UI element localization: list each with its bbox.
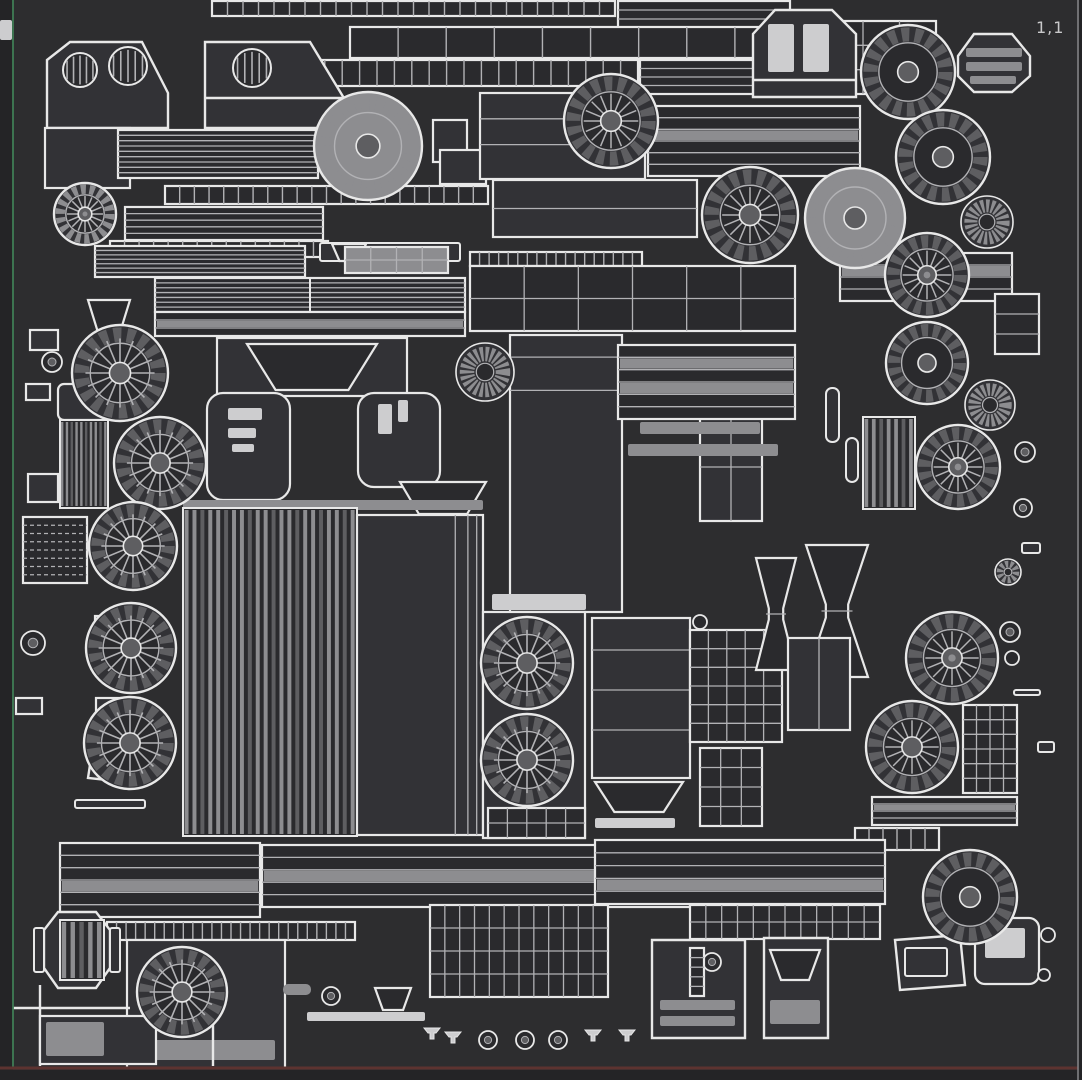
island-cab-front-small[interactable] [958,34,1030,92]
island-circle[interactable] [1038,969,1050,981]
island-bar[interactable] [307,1012,425,1021]
island-bar[interactable] [966,62,1022,71]
island-wheel[interactable] [702,167,798,263]
island-ladder[interactable] [470,252,642,266]
island-circle[interactable] [1000,622,1020,642]
island-bar[interactable] [228,428,256,438]
island-panel[interactable] [28,474,58,502]
island-grid[interactable] [995,294,1039,354]
island-5[interactable] [648,106,860,176]
island-wheel[interactable] [861,25,955,119]
island-donut[interactable] [961,196,1013,248]
island-circle[interactable] [693,615,707,629]
island-bar[interactable] [966,48,1022,57]
island-panel[interactable] [788,638,850,730]
island-tee[interactable] [445,1032,461,1043]
island-circle[interactable] [516,1031,534,1049]
island-gcirc[interactable] [233,49,271,87]
island-6[interactable] [95,246,305,277]
uv-canvas[interactable] [0,0,1082,1080]
island-wheel[interactable] [564,74,658,168]
island-wheel[interactable] [885,233,969,317]
island-5[interactable] [60,843,260,917]
island-wheel[interactable] [86,603,176,693]
island-panel[interactable] [207,393,290,500]
outside-uv-left [0,0,13,1080]
island-bar[interactable] [34,928,44,972]
island-cab-side[interactable] [47,42,168,128]
island-bar[interactable] [137,1040,275,1060]
island-bar[interactable] [970,76,1016,84]
island-donut[interactable] [965,380,1015,430]
island-grid[interactable] [430,905,608,997]
island-bar[interactable] [660,1016,735,1026]
island-circle[interactable] [322,987,340,1005]
island-ladder[interactable] [350,27,783,58]
island-wheel[interactable] [886,322,968,404]
island-wheel[interactable] [866,701,958,793]
island-wheel[interactable] [137,947,227,1037]
island-panel[interactable] [493,180,697,237]
island-bar[interactable] [1022,543,1040,553]
island-wheel[interactable] [314,92,422,200]
island-vstripes[interactable] [183,508,357,836]
island-panel[interactable] [510,335,622,612]
island-circle[interactable] [479,1031,497,1049]
island-bar[interactable] [905,948,947,976]
island-circle[interactable] [42,352,62,372]
island-panel[interactable] [30,330,58,350]
island-donut[interactable] [995,559,1021,585]
island-wheel[interactable] [906,612,998,704]
island-vstripes[interactable] [60,420,108,508]
island-wheel[interactable] [896,110,990,204]
island-bar[interactable] [595,818,675,828]
island-panel[interactable] [40,1016,156,1064]
island-wheel[interactable] [84,697,176,789]
island-vstripes[interactable] [60,920,104,980]
island-ladder[interactable] [212,1,615,16]
island-trap[interactable] [595,782,683,812]
island-wheel[interactable] [72,325,168,421]
island-tee[interactable] [619,1030,635,1041]
island-7[interactable] [23,517,87,583]
island-grid[interactable] [690,905,880,939]
island-trap[interactable] [375,988,411,1010]
island-donut[interactable] [456,343,514,401]
island-bar[interactable] [768,24,794,72]
island-ladder[interactable] [165,186,488,204]
island-circle[interactable] [21,631,45,655]
island-cab-bottom[interactable] [652,940,745,1038]
island-bar[interactable] [803,24,829,72]
island-ladder[interactable] [107,922,355,940]
island-circle[interactable] [1014,499,1032,517]
island-bar[interactable] [660,1000,735,1010]
island-bar[interactable] [283,984,311,995]
island-bar[interactable] [628,444,778,456]
island-wheel[interactable] [481,617,573,709]
island-bar[interactable] [826,388,839,442]
island-wheel[interactable] [89,502,177,590]
island-bar[interactable] [1014,690,1040,695]
island-6[interactable] [155,278,465,312]
island-bar[interactable] [846,438,858,482]
island-panel[interactable] [358,393,440,487]
island-gcirc[interactable] [109,47,147,85]
island-bar[interactable] [770,1000,820,1024]
outside-uv-bottom [0,1070,1082,1080]
island-bar[interactable] [232,444,254,452]
island-wheel[interactable] [481,714,573,806]
island-cab-front[interactable] [753,10,856,97]
island-bar[interactable] [110,928,120,972]
island-bar[interactable] [1038,742,1054,752]
island-3[interactable] [872,797,1017,825]
island-panel[interactable] [592,618,690,778]
island-bar[interactable] [640,422,760,434]
island-gcirc[interactable] [63,53,97,87]
island-vstripes[interactable] [863,417,915,509]
island-bar[interactable] [378,404,392,434]
island-grid[interactable] [345,247,448,273]
island-grid[interactable] [470,266,795,331]
island-tee[interactable] [424,1028,440,1039]
island-bar[interactable] [75,800,145,808]
island-grid[interactable] [963,705,1017,793]
island-mirror-bracket[interactable] [895,935,965,990]
island-cab-bottom2[interactable] [764,938,828,1038]
island-panel[interactable] [16,698,42,714]
island-circle[interactable] [1041,928,1055,942]
uv-corner-label: 1,1 [1036,18,1064,37]
island-circle[interactable] [1015,442,1035,462]
island-grid[interactable] [700,748,762,826]
island-circle[interactable] [549,1031,567,1049]
island-bar[interactable] [228,408,262,420]
island-4[interactable] [125,207,323,240]
island-5[interactable] [618,345,795,419]
island-bar[interactable] [492,594,586,610]
island-wheel[interactable] [923,850,1017,944]
island-bar[interactable] [398,400,408,422]
island-8[interactable] [118,130,318,178]
uv-editor-viewport[interactable]: 1,1 [0,0,1082,1080]
island-circle[interactable] [703,953,721,971]
island-4[interactable] [595,840,885,904]
island-circle[interactable] [1005,651,1019,665]
island-tee[interactable] [585,1030,601,1041]
island-panel[interactable] [26,384,50,400]
island-panel[interactable] [357,515,483,835]
island-wheel[interactable] [54,183,116,245]
island-grid[interactable] [488,808,585,838]
island-grid[interactable] [690,948,704,996]
island-2[interactable] [155,312,465,336]
island-bar[interactable] [46,1022,104,1056]
island-bar[interactable] [0,20,12,40]
island-wheel[interactable] [114,417,206,509]
island-wheel[interactable] [916,425,1000,509]
